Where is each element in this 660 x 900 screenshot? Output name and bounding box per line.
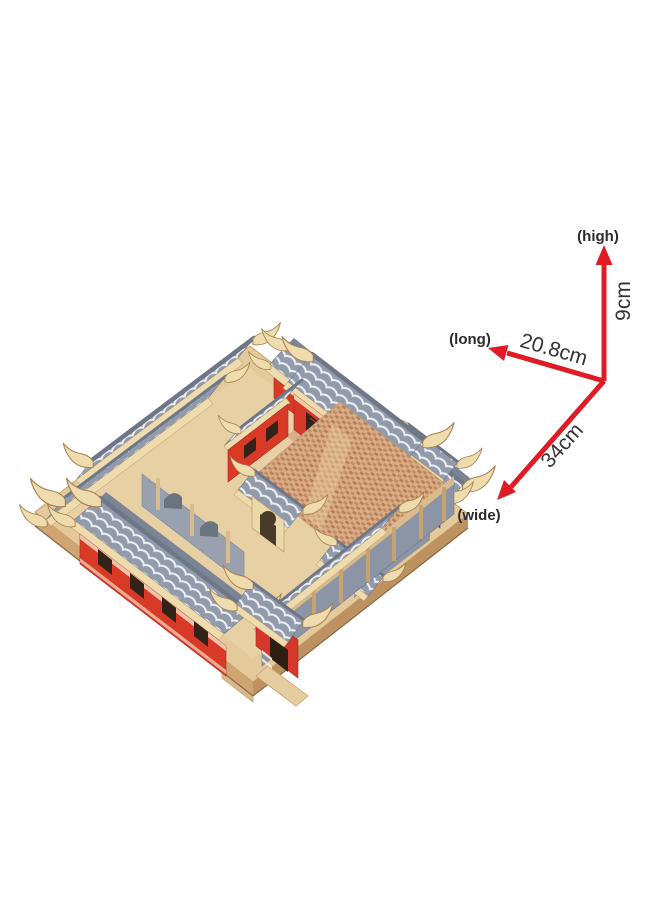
high-value: 9cm <box>612 281 635 321</box>
long-label: (long) <box>449 331 491 348</box>
high-label: (high) <box>577 228 619 245</box>
product-photo-courtyard-puzzle: (high) 9cm (long) 20.8cm 34cm (wide) <box>0 0 660 900</box>
wide-label: (wide) <box>457 507 500 524</box>
